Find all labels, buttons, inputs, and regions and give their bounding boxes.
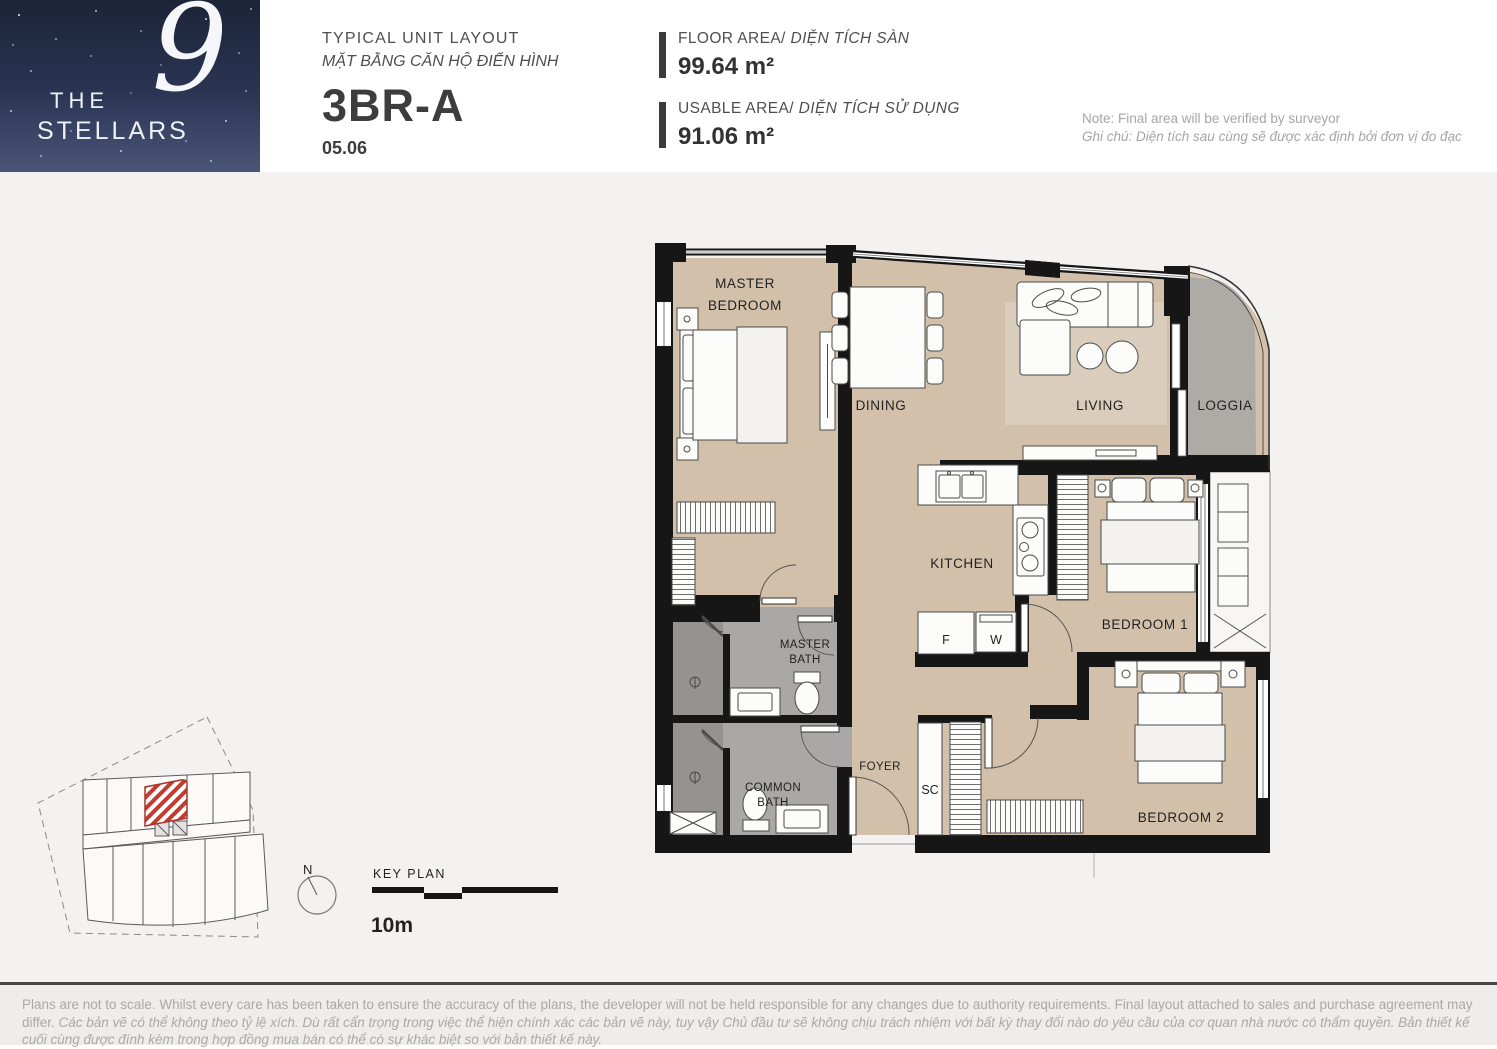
- floor-area-label-vi: DIỆN TÍCH SÀN: [786, 30, 910, 47]
- layout-title-vi: MẶT BẰNG CĂN HỘ ĐIỂN HÌNH: [322, 53, 558, 71]
- label-washer: W: [990, 633, 1002, 647]
- accent-bar: [659, 32, 666, 78]
- shoe-cabinet: [918, 723, 942, 835]
- label-common-bath: BATH: [757, 797, 788, 809]
- wardrobe: [1057, 475, 1088, 600]
- wardrobe: [987, 800, 1083, 833]
- highlighted-unit: [145, 780, 187, 826]
- usable-area-row: USABLE AREA/ DIỆN TÍCH SỬ DỤNG 91.06 m²: [659, 100, 960, 151]
- page: 9 THE STELLARS TYPICAL UNIT LAYOUT MẶT B…: [0, 0, 1497, 1045]
- scale-label: 10m: [371, 914, 413, 937]
- entrance-door: [849, 777, 856, 835]
- pouf: [1077, 343, 1103, 369]
- floor-area-row: FLOOR AREA/ DIỆN TÍCH SÀN 99.64 m²: [659, 30, 960, 81]
- surveyor-note-vi: Ghi chú: Diện tích sau cùng sẽ được xác …: [1082, 128, 1462, 146]
- logo-nine-numeral: 9: [152, 0, 228, 116]
- label-kitchen: KITCHEN: [930, 556, 993, 571]
- accent-bar: [659, 102, 666, 148]
- unit-code: 3BR-A: [322, 80, 558, 132]
- master-bed: [677, 308, 787, 460]
- floor-area-label: FLOOR AREA/ DIỆN TÍCH SÀN: [678, 30, 960, 48]
- disclaimer-vi: Các bản vẽ có thể không theo tỷ lệ xích.…: [22, 1015, 1469, 1048]
- area-summary: FLOOR AREA/ DIỆN TÍCH SÀN 99.64 m² USABL…: [659, 30, 960, 170]
- pouf: [1106, 341, 1138, 373]
- label-loggia: LOGGIA: [1197, 398, 1252, 413]
- compass: N: [298, 862, 336, 914]
- label-shoe-cabinet: SC: [921, 783, 938, 797]
- usable-area-value: 91.06 m²: [678, 123, 960, 151]
- wardrobe: [672, 538, 695, 605]
- console-table: [1023, 446, 1157, 460]
- loggia-sliding-door: [1178, 390, 1186, 456]
- unit-number: 05.06: [322, 138, 558, 159]
- layout-title-en: TYPICAL UNIT LAYOUT: [322, 30, 558, 48]
- footer-disclaimer: Plans are not to scale. Whilst every car…: [0, 985, 1497, 1045]
- label-dining: DINING: [856, 398, 907, 413]
- label-fridge: F: [942, 633, 950, 647]
- label-master-bath: MASTER: [780, 639, 830, 651]
- label-master-bath: BATH: [789, 654, 820, 666]
- usable-area-label-vi: DIỆN TÍCH SỬ DỤNG: [794, 100, 960, 117]
- logo-stellars: STELLARS: [37, 117, 189, 146]
- logo-the: THE: [50, 88, 109, 114]
- north-label: N: [303, 862, 312, 877]
- key-plan-label: KEY PLAN: [373, 867, 446, 881]
- brand-logo: 9 THE STELLARS: [0, 0, 260, 172]
- label-bedroom-2: BEDROOM 2: [1138, 810, 1224, 825]
- key-plan: N KEY PLAN 10m: [15, 710, 575, 955]
- wardrobe: [950, 722, 981, 835]
- floor-area-label-en: FLOOR AREA/: [678, 30, 786, 47]
- floor-area-value: 99.64 m²: [678, 53, 960, 81]
- label-living: LIVING: [1076, 398, 1124, 413]
- usable-area-label-en: USABLE AREA/: [678, 100, 794, 117]
- label-master-bedroom: MASTER: [715, 276, 775, 291]
- wardrobe: [677, 502, 775, 533]
- label-common-bath: COMMON: [745, 782, 801, 794]
- label-master-bedroom: BEDROOM: [708, 298, 782, 313]
- surveyor-note-en: Note: Final area will be verified by sur…: [1082, 110, 1462, 128]
- stars-decoration: [0, 0, 2, 2]
- label-bedroom-1: BEDROOM 1: [1102, 617, 1188, 632]
- surveyor-note: Note: Final area will be verified by sur…: [1082, 110, 1462, 146]
- label-foyer: FOYER: [859, 761, 901, 773]
- floor-plan: MASTER BEDROOM DINING LIVING LOGGIA KITC…: [648, 232, 1304, 880]
- scale-bar: [372, 887, 558, 899]
- unit-title-block: TYPICAL UNIT LAYOUT MẶT BẰNG CĂN HỘ ĐIỂN…: [322, 30, 558, 159]
- loggia-sliding-door: [1172, 324, 1180, 388]
- usable-area-label: USABLE AREA/ DIỆN TÍCH SỬ DỤNG: [678, 100, 960, 118]
